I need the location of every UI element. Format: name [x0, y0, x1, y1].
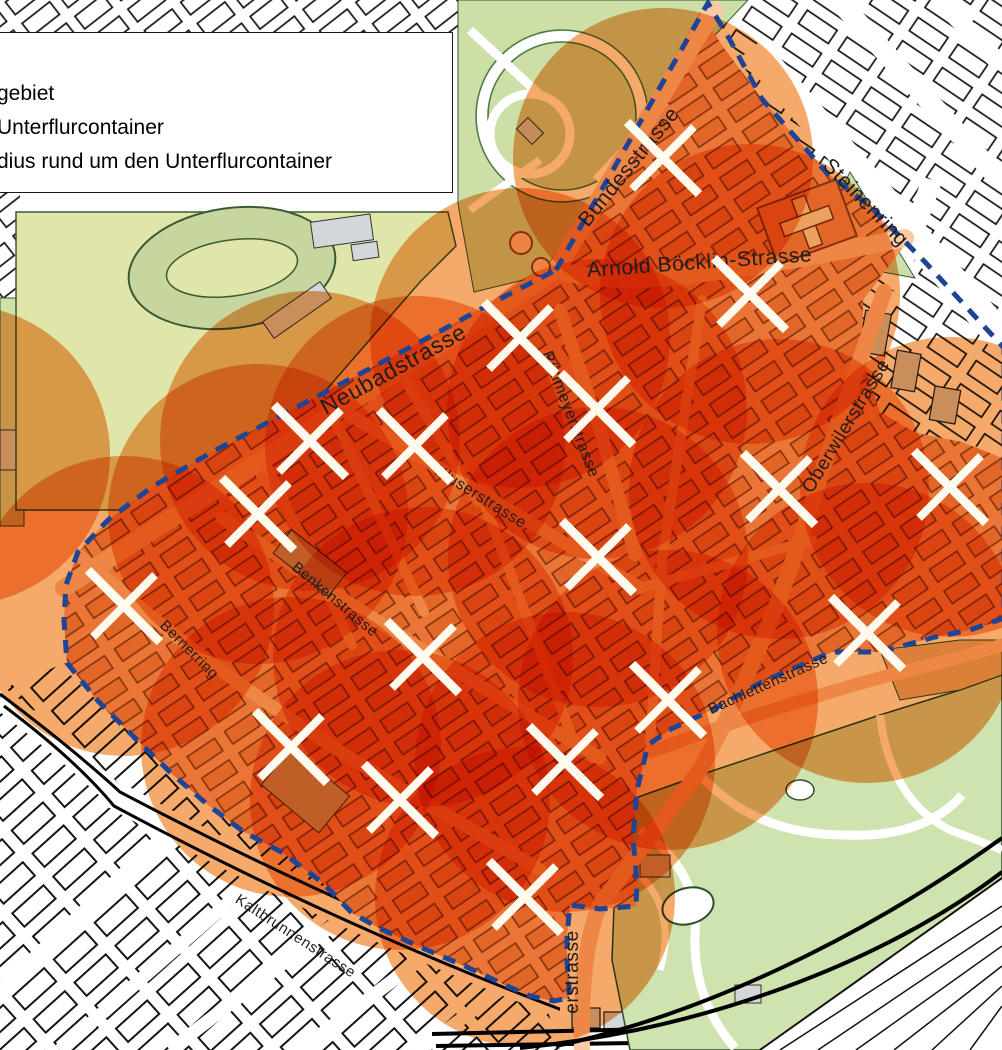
map-region: BundesstrasseSteinenringArnold Böcklin-S… — [0, 0, 1002, 1050]
legend-item-radius: dius rund um den Unterflurcontainer — [0, 145, 452, 179]
street-label: erstrasse — [562, 930, 583, 1014]
legend: gebiet Unterflurcontainer dius rund um d… — [0, 32, 453, 193]
legend-item-container: Unterflurcontainer — [0, 111, 452, 145]
legend-item-pilot-area: gebiet — [0, 77, 452, 111]
